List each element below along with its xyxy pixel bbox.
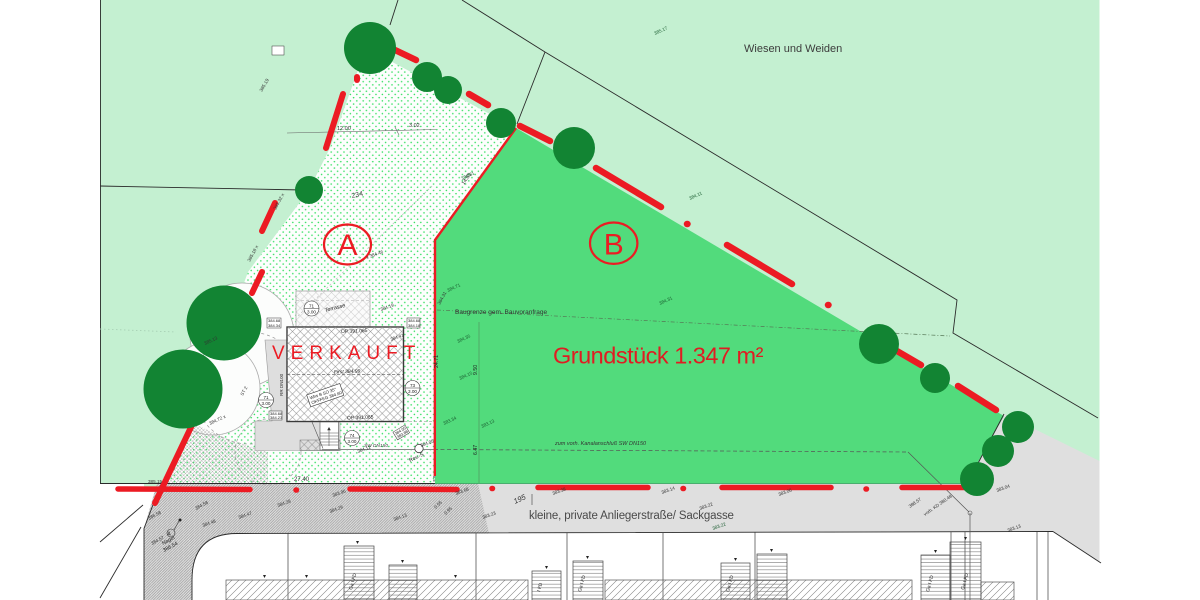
svg-text:73: 73 bbox=[410, 383, 416, 388]
svg-text:OP 391.065: OP 391.065 bbox=[347, 415, 374, 422]
svg-text:A: A bbox=[337, 229, 357, 262]
svg-text:384.23: 384.23 bbox=[270, 415, 283, 420]
svg-text:OP 391.065: OP 391.065 bbox=[341, 328, 368, 335]
svg-text:71: 71 bbox=[309, 304, 315, 309]
svg-text:3.02: 3.02 bbox=[409, 123, 420, 129]
svg-text:B: B bbox=[604, 229, 624, 262]
svg-text:24.71: 24.71 bbox=[434, 355, 440, 368]
svg-text:3.00: 3.00 bbox=[348, 439, 357, 444]
svg-text:kleine, private Anliegerstraße: kleine, private Anliegerstraße/ Sackgass… bbox=[529, 510, 734, 522]
svg-text:12.00: 12.00 bbox=[337, 126, 351, 132]
svg-text:71: 71 bbox=[263, 395, 269, 400]
svg-text:Baugrenze gem. Bauvoranfrage: Baugrenze gem. Bauvoranfrage bbox=[455, 309, 548, 316]
svg-text:9.50: 9.50 bbox=[473, 365, 479, 375]
svg-text:RR DN100: RR DN100 bbox=[279, 373, 284, 396]
svg-text:3.00: 3.00 bbox=[307, 310, 316, 315]
svg-text:384.18: 384.18 bbox=[408, 323, 421, 328]
svg-text:384.34: 384.34 bbox=[268, 323, 281, 328]
svg-text:27.40: 27.40 bbox=[294, 477, 310, 483]
svg-text:First 384.99: First 384.99 bbox=[334, 369, 361, 376]
svg-text:6.47: 6.47 bbox=[473, 445, 479, 455]
svg-text:385.15: 385.15 bbox=[148, 479, 162, 484]
svg-text:3.00: 3.00 bbox=[262, 401, 271, 406]
svg-text:74: 74 bbox=[349, 433, 355, 438]
svg-text:VERKAUFT: VERKAUFT bbox=[272, 343, 421, 364]
svg-text:3.00: 3.00 bbox=[408, 389, 417, 394]
svg-text:Wiesen und Weiden: Wiesen und Weiden bbox=[744, 43, 842, 55]
svg-text:zum vorh. Kanalanschluß SW DN1: zum vorh. Kanalanschluß SW DN150 bbox=[554, 441, 647, 447]
svg-text:Grundstück 1.347 m²: Grundstück 1.347 m² bbox=[553, 343, 764, 369]
